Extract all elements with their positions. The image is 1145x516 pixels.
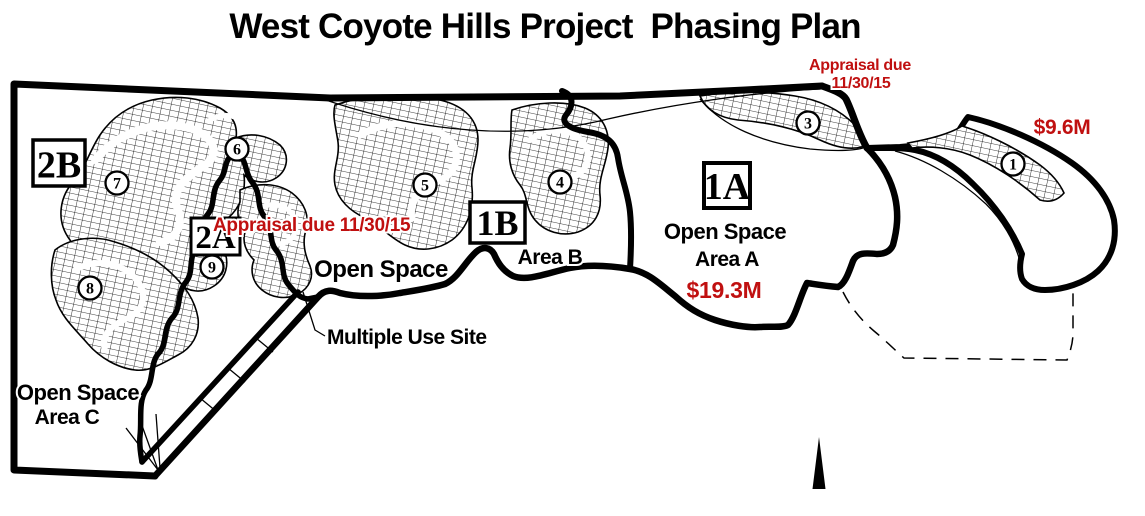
open-space-mid-label: Open Space: [314, 256, 448, 283]
parcel-marker-5: 5: [414, 174, 437, 197]
amount-right: $9.6M: [1034, 116, 1091, 139]
appraisal-note-right-line1: Appraisal due: [809, 57, 911, 74]
parcel-number: 7: [113, 176, 121, 193]
parcel-marker-4: 4: [549, 171, 572, 194]
parcel-marker-6: 6: [226, 138, 249, 161]
open-space-c-label-line2: Area C: [35, 406, 100, 429]
parcel-marker-8: 8: [79, 277, 102, 300]
dashed-boundary: [843, 292, 1073, 360]
corridor-hatch: [200, 338, 273, 412]
north-spike: [813, 437, 826, 489]
appraisal-note-left: Appraisal due 11/30/15: [213, 215, 411, 236]
phase-label: 1A: [704, 166, 751, 208]
page-title: West Coyote Hills Project Phasing Plan: [229, 7, 860, 46]
phase-label: 2B: [37, 145, 81, 187]
phase-label-1a: 1A: [704, 163, 751, 208]
parcel-number: 3: [804, 116, 812, 133]
phasing-plan-map: 2B 2A 1B 1A 7 6 8 9 5 4 3 1: [0, 0, 1145, 516]
parcel-number: 1: [1009, 157, 1017, 174]
parcel-marker-7: 7: [106, 172, 129, 195]
open-space-c-label-line1: Open Space: [17, 380, 139, 405]
parcel-marker-1: 1: [1002, 153, 1025, 176]
parcel-marker-9: 9: [201, 256, 224, 279]
parcel-number: 5: [421, 178, 429, 195]
phasing-plan-page: 2B 2A 1B 1A 7 6 8 9 5 4 3 1: [0, 0, 1145, 516]
amount-area-a: $19.3M: [687, 277, 762, 303]
area-b-label: Area B: [518, 246, 583, 269]
phase-label: 1B: [476, 203, 518, 243]
parcel-number: 9: [208, 260, 216, 277]
parcel-marker-3: 3: [797, 112, 820, 135]
multiple-use-site-label: Multiple Use Site: [327, 326, 487, 349]
parcel-number: 4: [556, 175, 564, 192]
phase-label-2b: 2B: [33, 140, 85, 187]
open-space-a-label-line1: Open Space: [664, 219, 786, 244]
parcel-number: 8: [86, 281, 94, 298]
open-space-a-label-line2: Area A: [695, 248, 759, 271]
phase-label-1b: 1B: [470, 202, 525, 243]
parcel-number: 6: [233, 142, 241, 159]
appraisal-note-right-line2: 11/30/15: [832, 75, 891, 92]
